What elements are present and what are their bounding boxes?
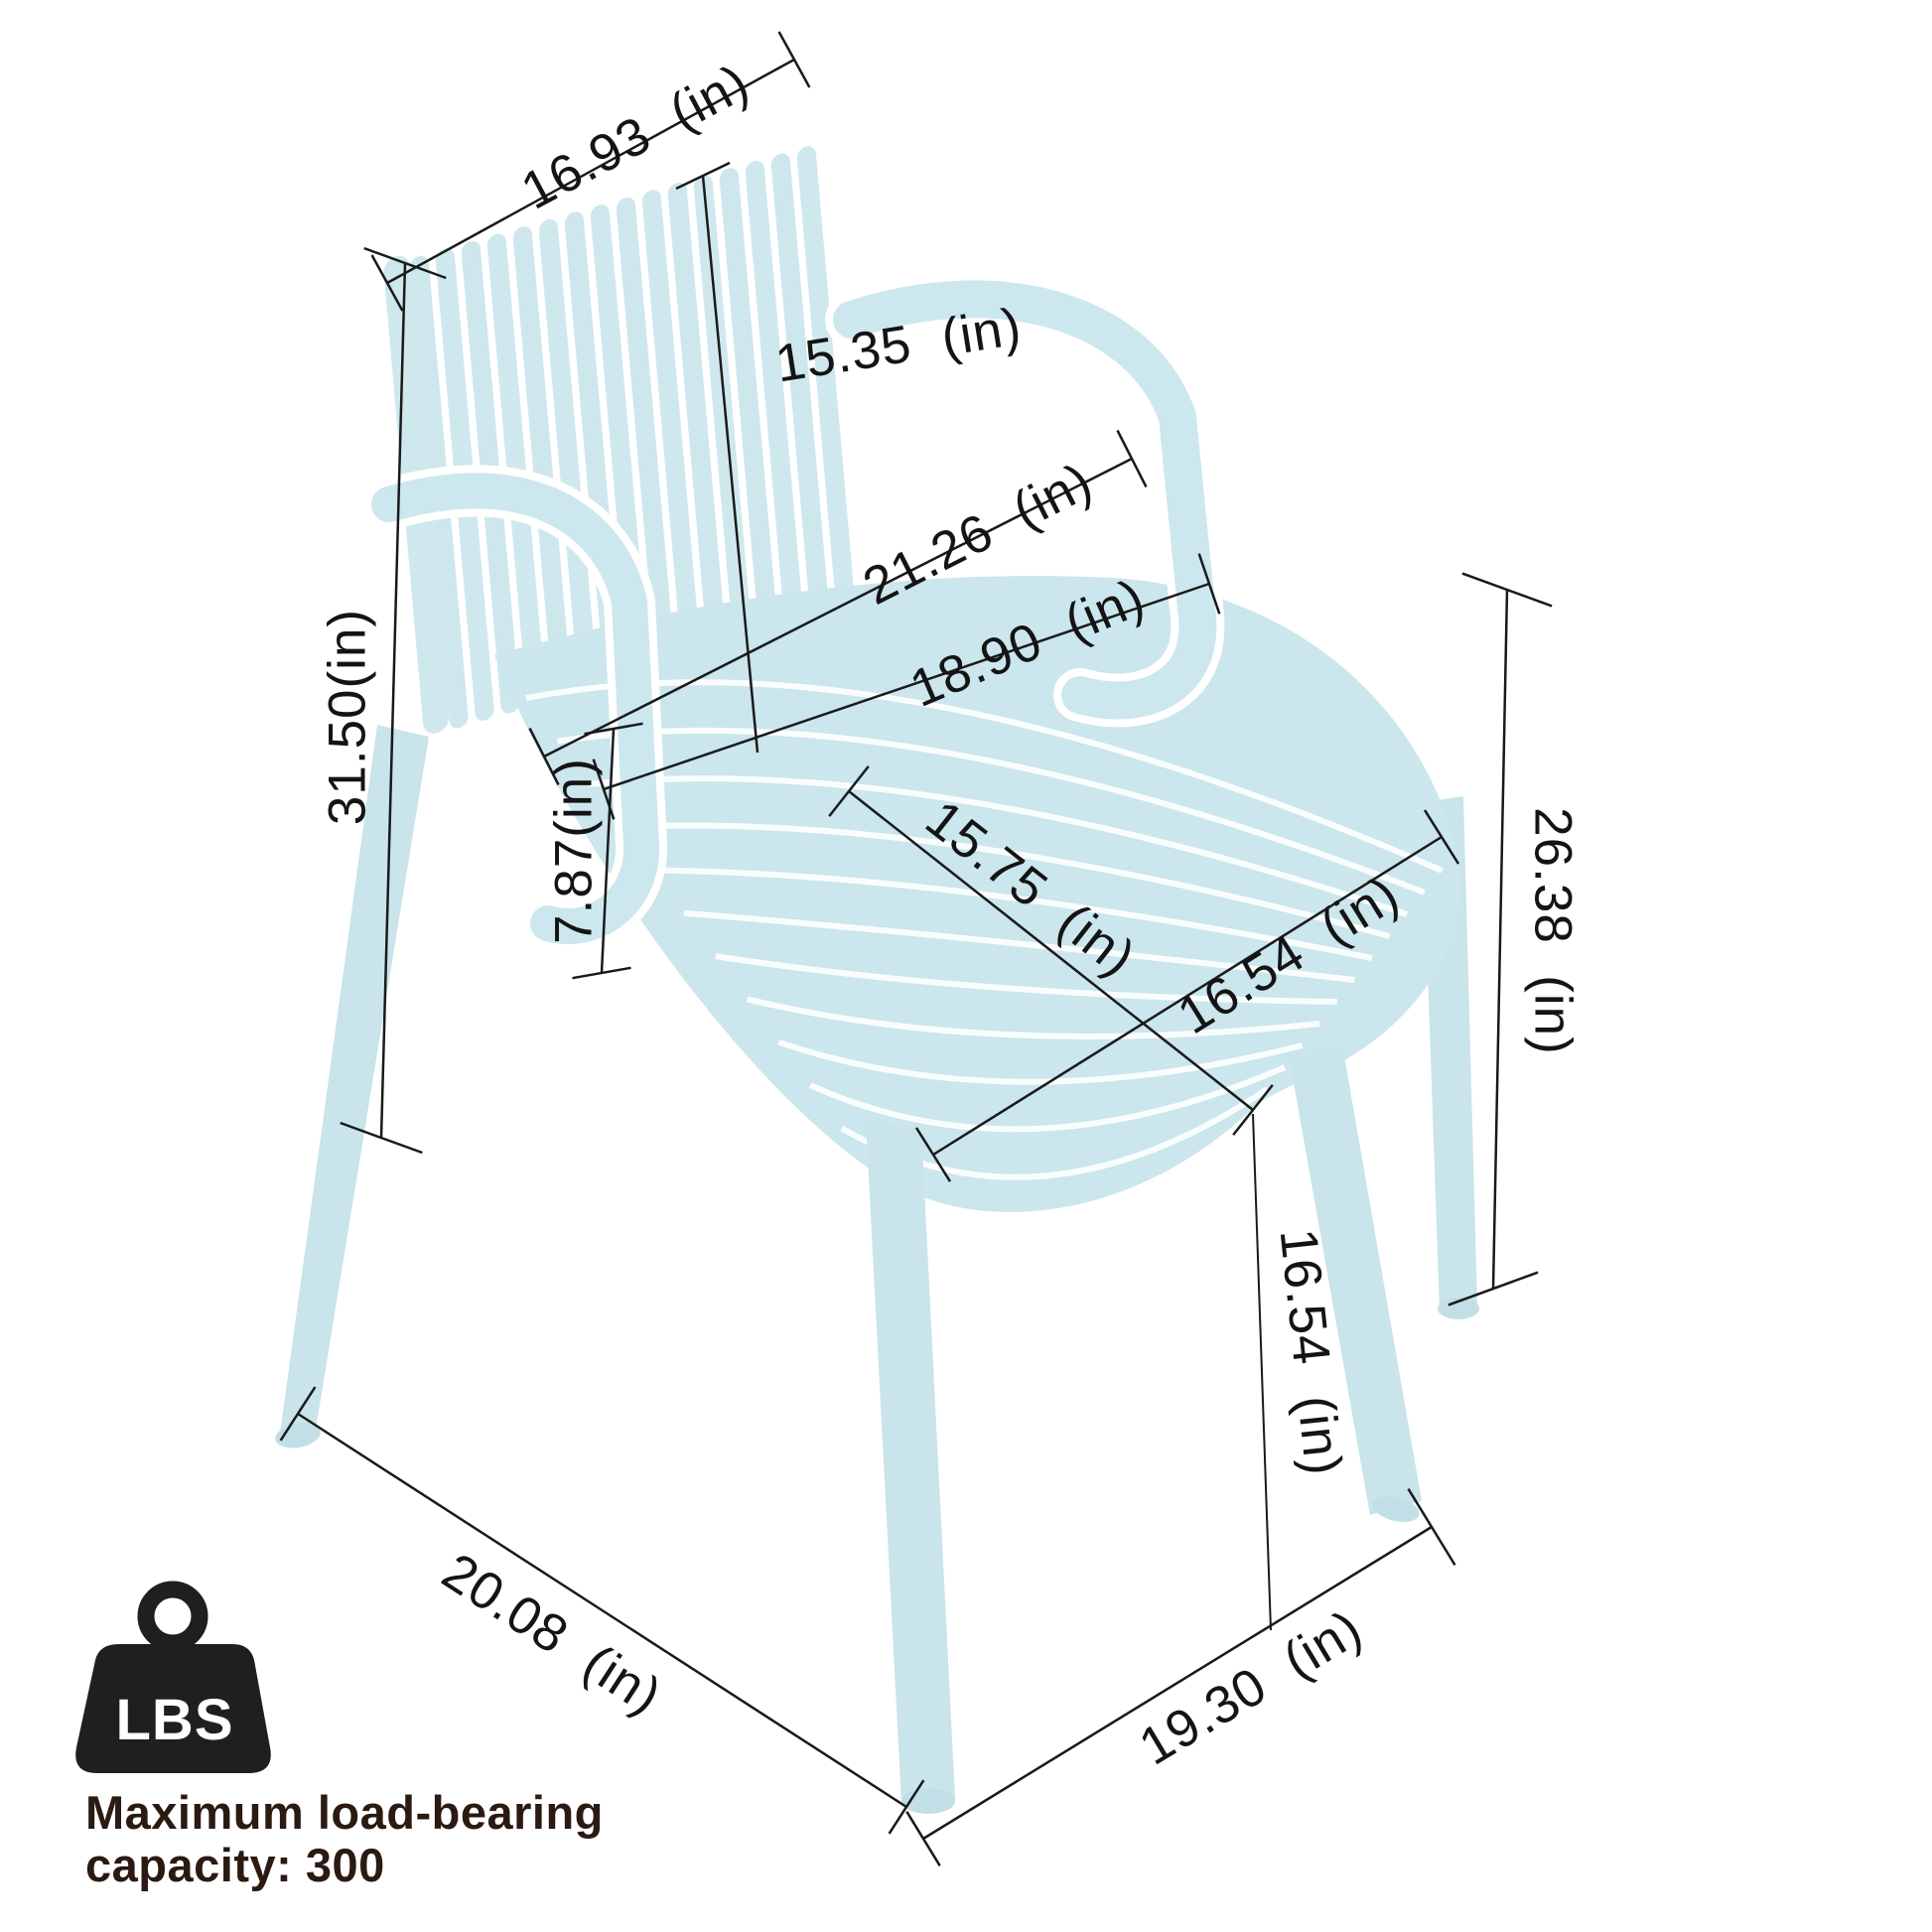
weight-icon-label: LBS <box>116 1688 234 1752</box>
dim-line-base-depth <box>281 1387 924 1834</box>
dim-label-back-to-floor: 26.38 (in) <box>1527 807 1580 1055</box>
dim-line-leg-height <box>1253 1114 1271 1630</box>
rear-left-leg <box>273 725 429 1451</box>
chair-dimension-illustration: LBS <box>0 0 1932 1932</box>
dim-line-base-width <box>906 1489 1454 1866</box>
front-left-leg <box>866 1120 955 1814</box>
load-capacity-line1: Maximum load-bearing <box>85 1787 604 1840</box>
product-dimension-diagram: LBS 16.93 (in) 15.35 (in) 21.26 (in) 18.… <box>0 0 1932 1932</box>
load-capacity-line2: capacity: 300 <box>85 1840 604 1892</box>
weight-icon: LBS <box>75 1589 271 1773</box>
load-capacity-caption: Maximum load-bearing capacity: 300 <box>85 1787 604 1891</box>
dim-label-armrest-height: 7.87(in) <box>548 758 601 944</box>
dim-label-overall-height: 31.50(in) <box>322 609 374 825</box>
weight-icon-ring <box>146 1589 200 1643</box>
